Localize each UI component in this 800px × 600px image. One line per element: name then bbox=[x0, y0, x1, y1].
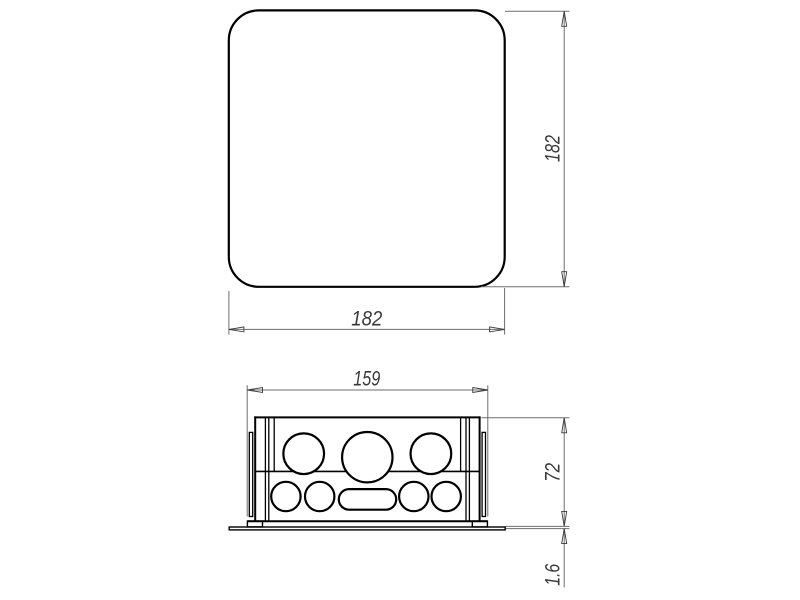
svg-text:159: 159 bbox=[353, 367, 380, 390]
svg-text:72: 72 bbox=[542, 463, 565, 482]
svg-text:182: 182 bbox=[542, 135, 565, 162]
svg-text:1.6: 1.6 bbox=[542, 564, 565, 586]
svg-text:182: 182 bbox=[351, 308, 382, 331]
